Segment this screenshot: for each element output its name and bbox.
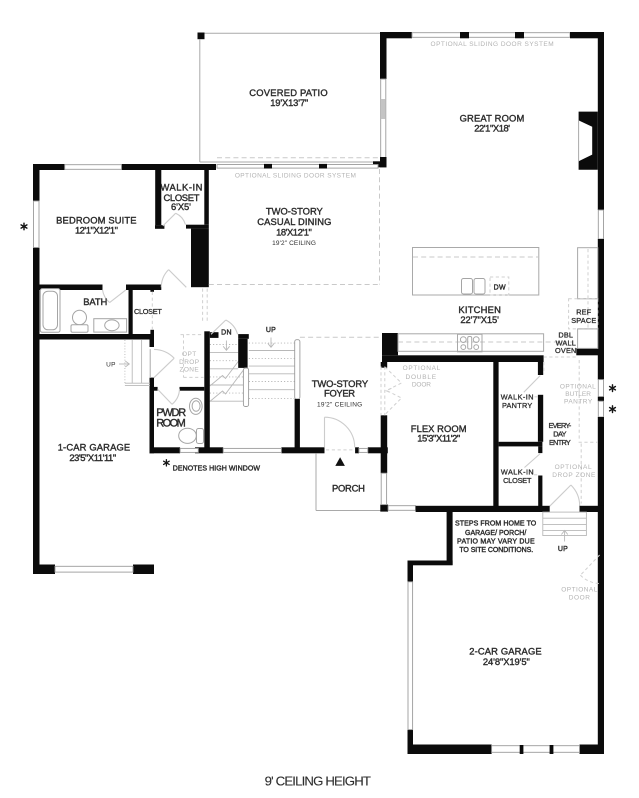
svg-text:ENTRY: ENTRY — [549, 438, 571, 447]
svg-text:UP: UP — [106, 362, 116, 369]
svg-text:18'X12'1": 18'X12'1" — [276, 227, 312, 238]
svg-text:19'2" CEILING: 19'2" CEILING — [272, 240, 316, 247]
svg-text:OPTIONAL SLIDING DOOR SYSTEM: OPTIONAL SLIDING DOOR SYSTEM — [235, 173, 357, 180]
svg-text:PANTRY: PANTRY — [502, 401, 533, 410]
svg-text:GARAGE/ PORCH/: GARAGE/ PORCH/ — [465, 530, 527, 537]
svg-text:OPT: OPT — [182, 351, 197, 358]
svg-text:TWO-STORY: TWO-STORY — [266, 205, 324, 216]
svg-text:SPACE: SPACE — [571, 316, 596, 325]
svg-text:PATIO MAY VARY DUE: PATIO MAY VARY DUE — [457, 539, 535, 546]
svg-text:CLOSET: CLOSET — [134, 307, 162, 316]
svg-text:UP: UP — [558, 546, 568, 553]
svg-text:STEPS FROM HOME TO: STEPS FROM HOME TO — [455, 521, 537, 528]
svg-text:15'3"X11'2": 15'3"X11'2" — [417, 432, 461, 443]
svg-text:BATH: BATH — [83, 296, 108, 307]
svg-text:FOYER: FOYER — [324, 387, 356, 398]
svg-text:OPTIONAL: OPTIONAL — [555, 464, 592, 471]
svg-text:19'2" CEILING: 19'2" CEILING — [317, 401, 363, 408]
svg-text:PANTRY: PANTRY — [564, 399, 593, 406]
svg-text:23'5"X11'11": 23'5"X11'11" — [69, 452, 116, 463]
svg-text:DOOR: DOOR — [569, 595, 591, 602]
svg-text:UP: UP — [266, 327, 276, 334]
svg-text:24'8"X19'5": 24'8"X19'5" — [483, 656, 530, 667]
svg-text:DENOTES HIGH WINDOW: DENOTES HIGH WINDOW — [173, 466, 261, 473]
svg-text:OPTIONAL: OPTIONAL — [403, 365, 441, 372]
svg-text:OPTIONAL SLIDING DOOR SYSTEM: OPTIONAL SLIDING DOOR SYSTEM — [431, 41, 555, 48]
svg-text:DW: DW — [494, 285, 506, 292]
svg-text:DOOR: DOOR — [412, 382, 432, 389]
svg-text:ZONE: ZONE — [179, 367, 199, 374]
svg-text:6'X5': 6'X5' — [171, 201, 192, 212]
svg-text:22'7"X15': 22'7"X15' — [460, 314, 499, 325]
svg-text:2-CAR GARAGE: 2-CAR GARAGE — [469, 645, 542, 656]
svg-text:ROOM: ROOM — [156, 417, 186, 429]
svg-text:DN: DN — [221, 330, 232, 337]
svg-text:OPTIONAL: OPTIONAL — [560, 383, 596, 390]
svg-text:WALK-IN: WALK-IN — [160, 181, 203, 192]
svg-text:DOUBLE: DOUBLE — [406, 374, 437, 381]
svg-text:19'X13'7": 19'X13'7" — [270, 97, 309, 108]
svg-text:CASUAL DINING: CASUAL DINING — [257, 216, 332, 227]
svg-text:12'1"X12'1": 12'1"X12'1" — [75, 225, 119, 236]
svg-text:22'1"X18': 22'1"X18' — [474, 122, 510, 133]
svg-text:OPTIONAL: OPTIONAL — [561, 587, 598, 594]
svg-text:1-CAR GARAGE: 1-CAR GARAGE — [58, 442, 131, 453]
svg-text:DROP ZONE: DROP ZONE — [552, 472, 596, 479]
svg-text:CLOSET: CLOSET — [503, 476, 532, 485]
svg-text:BUTLER: BUTLER — [565, 391, 591, 398]
svg-text:TO SITE CONDITIONS.: TO SITE CONDITIONS. — [459, 547, 533, 554]
svg-text:DROP: DROP — [179, 359, 199, 366]
svg-text:9' CEILING HEIGHT: 9' CEILING HEIGHT — [265, 774, 373, 789]
svg-text:OVEN: OVEN — [555, 346, 576, 355]
svg-text:PORCH: PORCH — [332, 483, 366, 494]
